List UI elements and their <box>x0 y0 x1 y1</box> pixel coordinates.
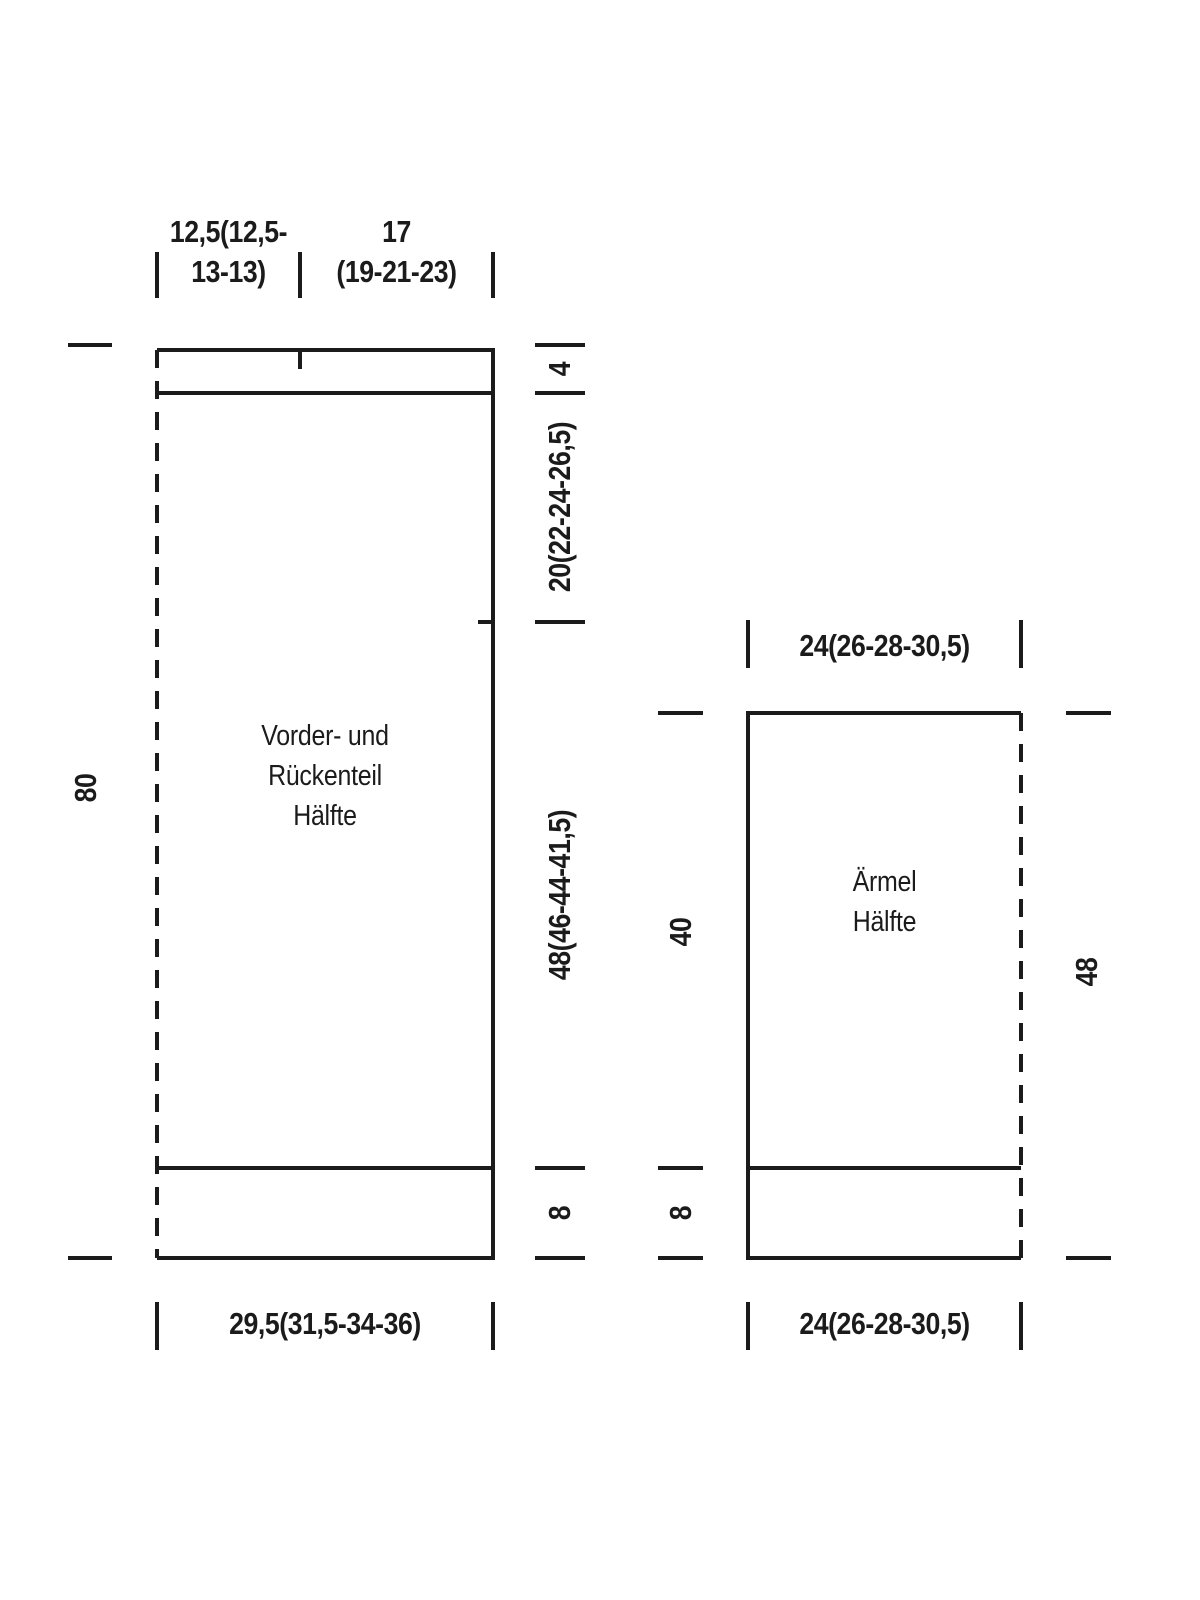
dim-front-back-body: 48(46-44-41,5) <box>540 810 580 980</box>
dim-front-back-height: 80 <box>66 774 106 803</box>
dim-sleeve-top-width: 24(26-28-30,5) <box>767 626 1002 666</box>
piece-label-sleeve: Ärmel Hälfte <box>767 862 1002 942</box>
dim-line: 17 <box>314 212 480 252</box>
piece-label-line: Rückenteil <box>181 756 470 796</box>
piece-label-line: Ärmel <box>767 862 1002 902</box>
dim-front-back-neckband: 4 <box>540 362 580 376</box>
dim-front-back-neck-width: 17 (19-21-23) <box>314 212 480 292</box>
knitting-pattern-schematic: 12,5(12,5- 13-13) 17 (19-21-23) 80 4 20(… <box>0 0 1200 1600</box>
piece-label-line: Hälfte <box>181 796 470 836</box>
piece-label-line: Hälfte <box>767 902 1002 942</box>
dim-sleeve-cuff: 8 <box>661 1206 701 1220</box>
piece-label-front-back: Vorder- und Rückenteil Hälfte <box>181 716 470 836</box>
dim-line: 13-13) <box>167 252 290 292</box>
dim-line: (19-21-23) <box>314 252 480 292</box>
dim-sleeve-bottom-width: 24(26-28-30,5) <box>767 1304 1002 1344</box>
dim-front-back-shoulder-width: 12,5(12,5- 13-13) <box>167 212 290 292</box>
dim-line: 12,5(12,5- <box>167 212 290 252</box>
dim-sleeve-total-length: 48 <box>1067 958 1107 987</box>
piece-label-line: Vorder- und <box>181 716 470 756</box>
dim-front-back-ribbing: 8 <box>540 1206 580 1220</box>
sleeve-outline <box>748 713 1021 1258</box>
dim-front-back-yoke: 20(22-24-26,5) <box>540 422 580 592</box>
dim-sleeve-upper-length: 40 <box>661 918 701 947</box>
dim-front-back-bottom-width: 29,5(31,5-34-36) <box>181 1304 470 1344</box>
